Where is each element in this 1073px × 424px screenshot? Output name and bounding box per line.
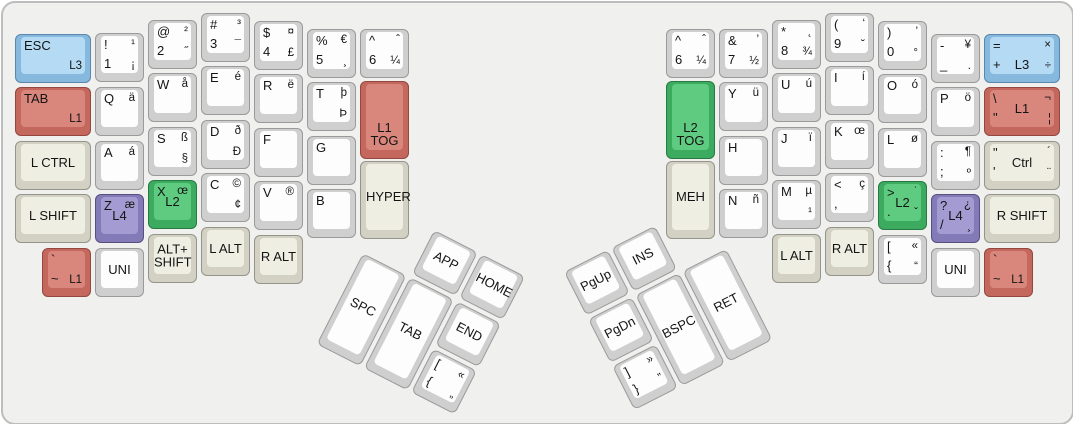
keycap-top: [«{“ <box>884 238 921 275</box>
key-label-bl: 6 <box>675 53 682 67</box>
key-label-tl: A <box>104 146 113 160</box>
keycap-top: L SHIFT <box>21 197 85 234</box>
key-label-tl: ( <box>834 18 838 32</box>
key-label-tl: ESC <box>24 39 51 53</box>
key-w[interactable]: Wå <box>148 73 197 122</box>
keycap-top: >˙.ˇL2 <box>884 184 921 221</box>
key-b[interactable]: B <box>307 189 356 238</box>
key-label-c: APP <box>427 246 466 275</box>
keycap-top: HYPER <box>366 164 403 230</box>
key-semicolon[interactable]: :¶;º <box>931 141 980 190</box>
key-label-c: L4 <box>937 209 974 223</box>
key-label-tr: ö <box>965 92 971 104</box>
keycap-top: Ií <box>831 69 868 106</box>
key-label-br: ° <box>913 47 918 59</box>
key-label-tl: T <box>316 87 324 101</box>
keycap-top: *˛8¾ <box>778 23 815 60</box>
key-label-br: L1 <box>1011 274 1024 286</box>
key-k[interactable]: Kœ <box>825 120 874 169</box>
key-label-tr: © <box>233 178 241 190</box>
key-label-c: R SHIFT <box>990 209 1054 223</box>
key-label-tr: þ <box>341 87 347 99</box>
keycap-top: %€5¸ <box>313 32 350 69</box>
keycap-top: Yü <box>725 85 762 122</box>
key-label-tl: # <box>210 18 217 32</box>
key-x-l2[interactable]: XœL2 <box>148 180 197 229</box>
key-lbracket-right[interactable]: [«{“ <box>878 235 927 284</box>
key-r[interactable]: Rë <box>254 74 303 123</box>
keycap-top: H <box>725 139 762 176</box>
key-f[interactable]: F <box>254 128 303 177</box>
key-label-br: L1 <box>69 274 82 286</box>
key-label-tl: D <box>210 125 219 139</box>
keycap-top: G <box>313 139 350 176</box>
key-lalt-left[interactable]: L ALT <box>201 227 250 276</box>
key-label-tr: ï <box>809 132 812 144</box>
keycap-top: <ç, <box>831 176 868 213</box>
keycap-top: Nñ <box>725 192 762 229</box>
key-4[interactable]: $¤4£ <box>254 21 303 70</box>
key-label-tl: ^ <box>369 34 375 48</box>
key-label-tr: × <box>1044 39 1051 51</box>
keycap-top: PgUp <box>571 255 621 305</box>
key-esc-l3[interactable]: ESCL3 <box>15 34 91 83</box>
key-label-tr: µ <box>805 185 812 197</box>
key-label-c: L2 TOG <box>672 121 709 148</box>
keycap-top: =×+÷L3 <box>990 37 1054 74</box>
keycap-top: ?¿/¸L4 <box>937 197 974 234</box>
key-label-tl: ) <box>887 26 891 40</box>
keycap-top: END <box>445 307 495 357</box>
key-label-tr: ß <box>181 132 188 144</box>
key-6-right[interactable]: ^ˆ6¼ <box>666 29 715 78</box>
keycap-top: DðÐ <box>207 123 244 160</box>
keycap-top: TþÞ <box>313 85 350 122</box>
key-label-bl: 3 <box>210 37 217 51</box>
key-label-c: L2 <box>154 195 191 209</box>
key-label-tl: Y <box>728 87 737 101</box>
key-label-tr: ˆ <box>702 34 706 46</box>
key-label-c: UNI <box>101 263 138 277</box>
key-label-tr: ³ <box>237 18 241 30</box>
keyboard-layout-canvas: ESCL3TABL1L CTRLL SHIFT`~L1!¹1¡QäAáZæL4U… <box>0 0 1073 424</box>
key-label-tr: ë <box>288 79 294 91</box>
key-label-tl: P <box>940 92 949 106</box>
key-label-tl: @ <box>157 25 170 39</box>
key-label-c: TAB <box>391 317 430 346</box>
key-o[interactable]: Oó <box>878 74 927 123</box>
key-label-c: MEH <box>672 190 709 204</box>
keycap-top: Rë <box>260 77 297 114</box>
keycap-top: R ALT <box>831 230 868 267</box>
key-label-br: ½ <box>749 55 759 67</box>
key-label-tr: é <box>235 71 241 83</box>
key-label-tl: U <box>781 78 790 92</box>
keycap-top: L ALT <box>207 230 244 267</box>
keycap-top: -¥_. <box>937 37 974 74</box>
key-p[interactable]: Pö <box>931 87 980 136</box>
key-label-tr: ¶ <box>965 146 971 158</box>
key-label-tl: TAB <box>24 92 48 106</box>
keycap-top: MEH <box>672 164 709 230</box>
key-label-tl: N <box>728 194 737 208</box>
key-label-br: ¹ <box>808 206 812 218</box>
key-label-tr: ˛ <box>808 25 812 37</box>
keycap-top: ZæL4 <box>101 197 138 234</box>
key-i[interactable]: Ií <box>825 66 874 115</box>
keycap-top: B <box>313 192 350 229</box>
keycap-top: ^ˆ6¼ <box>366 32 403 69</box>
key-label-c: L4 <box>101 209 138 223</box>
key-label-br: Þ <box>339 108 347 120</box>
key-label-c: L3 <box>990 58 1054 72</box>
keycap-top: ALT+ SHIFT <box>154 237 191 274</box>
key-label-bl: 7 <box>728 53 735 67</box>
key-label-c: L ALT <box>207 242 244 256</box>
key-tab-l1[interactable]: TABL1 <box>15 87 91 136</box>
key-label-bl: 8 <box>781 44 788 58</box>
key-m[interactable]: Mµ¹ <box>772 180 821 229</box>
keycap-top: [«{„ <box>421 354 471 404</box>
key-label-br: ¯ <box>235 39 241 51</box>
key-label-br: º <box>967 167 971 179</box>
keycap-top: $¤4£ <box>260 24 297 61</box>
key-t[interactable]: TþÞ <box>307 82 356 131</box>
key-label-c: L SHIFT <box>21 209 85 223</box>
key-label-tl: S <box>157 132 166 146</box>
keycap-top: L1 TOG <box>366 84 403 150</box>
key-label-tl: [ <box>887 240 891 254</box>
key-label-tr: å <box>182 78 188 90</box>
key-uni-left[interactable]: UNI <box>95 248 144 297</box>
keycap-top: L2 TOG <box>672 84 709 150</box>
key-label-tl: - <box>940 39 944 53</box>
keycap-top: Kœ <box>831 123 868 160</box>
key-d[interactable]: DðÐ <box>201 120 250 169</box>
keycap-top: Aá <box>101 144 138 181</box>
keycap-top: PgDn <box>595 302 645 352</box>
keycap-top: Wå <box>154 76 191 113</box>
keycap-top: &’7½ <box>725 32 762 69</box>
key-label-c: BSPC <box>659 312 698 341</box>
key-uni-right[interactable]: UNI <box>931 248 980 297</box>
key-v[interactable]: V® <box>254 181 303 230</box>
keycap-top: Oó <box>884 77 921 114</box>
key-label-tr: ø <box>911 133 918 145</box>
key-ralt-left[interactable]: R ALT <box>254 235 303 284</box>
key-minus[interactable]: -¥_. <box>931 34 980 83</box>
key-label-br: ” <box>656 371 665 383</box>
key-lctrl[interactable]: L CTRL <box>15 141 91 190</box>
key-a[interactable]: Aá <box>95 141 144 190</box>
keycap-top: Jï <box>778 130 815 167</box>
key-label-tl: = <box>993 39 1001 53</box>
key-label-tr: ’ <box>915 26 918 38</box>
key-label-tr: « <box>456 368 467 382</box>
key-5[interactable]: %€5¸ <box>307 29 356 78</box>
key-label-c: R ALT <box>260 250 297 264</box>
key-h[interactable]: H <box>719 136 768 185</box>
key-q[interactable]: Qä <box>95 87 144 136</box>
key-7[interactable]: &’7½ <box>719 29 768 78</box>
key-backslash-l1[interactable]: \¬"¦L1 <box>984 87 1060 136</box>
key-label-c: PgUp <box>576 266 615 295</box>
key-label-tl: L <box>887 133 894 147</box>
keycap-top: ]»}” <box>619 350 669 400</box>
key-label-tl: R <box>263 79 272 93</box>
key-label-br: L3 <box>69 60 82 72</box>
key-lalt-right[interactable]: L ALT <box>772 234 821 283</box>
key-label-c: INS <box>623 241 662 270</box>
keycap-top: !¹1¡ <box>101 36 138 73</box>
keycap-top: )’0° <box>884 24 921 61</box>
key-label-bl: } <box>631 382 641 396</box>
key-label-c: R ALT <box>831 242 868 256</box>
key-e[interactable]: Eé <box>201 66 250 115</box>
key-g[interactable]: G <box>307 136 356 185</box>
key-u[interactable]: Uú <box>772 73 821 122</box>
keycap-top: C©¢ <box>207 176 244 213</box>
key-s[interactable]: Sß§ <box>148 127 197 176</box>
key-label-tr: € <box>341 34 347 46</box>
key-label-tl: I <box>834 71 838 85</box>
key-label-tl: [ <box>433 357 442 371</box>
key-label-tr: á <box>129 146 135 158</box>
key-label-c: UNI <box>937 263 974 277</box>
keycap-top: "´'¨Ctrl <box>990 144 1054 181</box>
key-label-tl: & <box>728 34 737 48</box>
keycap-top: F <box>260 131 297 168</box>
key-9[interactable]: (‘9˘ <box>825 13 874 62</box>
key-meh[interactable]: MEH <box>666 161 715 239</box>
keycap-top: UNI <box>937 251 974 288</box>
key-label-tl: * <box>781 25 786 39</box>
keycap-top: `~L1 <box>48 251 85 288</box>
key-label-bl: _ <box>940 58 947 72</box>
key-label-c: L1 <box>990 102 1054 116</box>
key-label-br: „ <box>448 388 457 400</box>
key-label-c: ALT+ SHIFT <box>154 242 191 269</box>
keycap-top: Eé <box>207 69 244 106</box>
key-label-br: ¡ <box>131 59 135 71</box>
key-label-bl: 1 <box>104 57 111 71</box>
key-lshift[interactable]: L SHIFT <box>15 194 91 243</box>
key-label-c: Ctrl <box>990 156 1054 170</box>
keycap-top: Sß§ <box>154 130 191 167</box>
key-label-tl: < <box>834 178 842 192</box>
key-label-br: ¼ <box>696 55 706 67</box>
key-label-tr: ú <box>806 78 812 90</box>
key-label-tl: W <box>157 78 169 92</box>
key-label-tr: ñ <box>753 194 759 206</box>
key-0[interactable]: )’0° <box>878 21 927 70</box>
key-label-tl: : <box>940 146 944 160</box>
keycap-top: TABL1 <box>21 90 85 127</box>
keycap-top: ESCL3 <box>21 37 85 74</box>
key-label-tr: ® <box>286 186 294 198</box>
key-label-tl: O <box>887 79 897 93</box>
key-8[interactable]: *˛8¾ <box>772 20 821 69</box>
key-label-bl: ~ <box>51 272 59 286</box>
key-label-c: L2 <box>884 196 921 210</box>
key-label-br: § <box>182 153 188 165</box>
key-comma[interactable]: <ç, <box>825 173 874 222</box>
key-label-tr: ‘ <box>862 18 865 30</box>
key-z-l4[interactable]: ZæL4 <box>95 194 144 243</box>
keycap-top: APP <box>421 235 471 285</box>
key-label-tr: ˆ <box>396 34 400 46</box>
keycap-top: L ALT <box>778 237 815 274</box>
key-label-br: ¸ <box>343 55 347 67</box>
keycap-top: R SHIFT <box>990 197 1054 234</box>
key-label-tr: ä <box>129 92 135 104</box>
key-label-tl: ^ <box>675 34 681 48</box>
key-label-tr: ó <box>912 79 918 91</box>
key-label-br: Ð <box>233 146 241 158</box>
key-label-c: END <box>450 317 489 346</box>
key-label-tl: G <box>316 141 326 155</box>
key-label-tr: » <box>644 353 655 367</box>
key-label-c: RET <box>707 288 746 317</box>
keycap-top: Qä <box>101 90 138 127</box>
key-label-tr: í <box>862 71 865 83</box>
keycap-top: :¶;º <box>937 144 974 181</box>
key-label-tl: ] <box>622 365 631 379</box>
key-label-c: PgDn <box>600 313 639 342</box>
keycap-top: XœL2 <box>154 183 191 220</box>
key-label-tl: $ <box>263 26 270 40</box>
key-quote-ctrl[interactable]: "´'¨Ctrl <box>984 141 1060 190</box>
key-label-tl: J <box>781 132 788 146</box>
key-label-c: L ALT <box>778 249 815 263</box>
key-label-bl: ; <box>940 165 944 179</box>
key-label-tr: ’ <box>756 34 759 46</box>
keycap-top: UNI <box>101 251 138 288</box>
key-2[interactable]: @²2˝ <box>148 20 197 69</box>
key-label-c: L1 TOG <box>366 121 403 148</box>
keycap-top: (‘9˘ <box>831 16 868 53</box>
key-label-tr: ² <box>184 25 188 37</box>
key-label-bl: 9 <box>834 37 841 51</box>
key-c[interactable]: C©¢ <box>201 173 250 222</box>
key-label-br: ¾ <box>802 46 812 58</box>
key-j[interactable]: Jï <box>772 127 821 176</box>
key-l1-tog[interactable]: L1 TOG <box>360 81 409 159</box>
key-grave-l1-right[interactable]: `~L1 <box>984 248 1033 297</box>
key-label-br: ˘ <box>861 39 865 51</box>
key-label-c: L CTRL <box>21 156 85 170</box>
keycap-top: Lø <box>884 131 921 168</box>
key-1[interactable]: !¹1¡ <box>95 33 144 82</box>
keycap-top: Uú <box>778 76 815 113</box>
key-rshift[interactable]: R SHIFT <box>984 194 1060 243</box>
key-label-tr: ç <box>859 178 865 190</box>
key-label-bl: 0 <box>887 45 894 59</box>
key-label-tl: ` <box>993 253 997 267</box>
key-label-tr: « <box>912 240 918 252</box>
key-label-tl: F <box>263 133 271 147</box>
key-label-bl: 4 <box>263 45 270 59</box>
key-label-bl: 6 <box>369 53 376 67</box>
key-label-tl: E <box>210 71 219 85</box>
key-label-tl: % <box>316 34 328 48</box>
key-n[interactable]: Nñ <box>719 189 768 238</box>
keycap-top: R ALT <box>260 238 297 275</box>
key-label-bl: { <box>887 259 891 273</box>
key-label-tl: K <box>834 125 843 139</box>
key-3[interactable]: #³3¯ <box>201 13 250 62</box>
keycap-top: ^ˆ6¼ <box>672 32 709 69</box>
keycap-top: INS <box>618 231 668 281</box>
keycap-top: L CTRL <box>21 144 85 181</box>
key-label-tr: ð <box>235 125 241 137</box>
key-label-c: HYPER <box>366 190 403 204</box>
key-label-bl: ~ <box>993 272 1001 286</box>
keycap-top: Mµ¹ <box>778 183 815 220</box>
keycap-top: @²2˝ <box>154 23 191 60</box>
key-label-tr: ü <box>753 87 759 99</box>
key-hyper[interactable]: HYPER <box>360 161 409 239</box>
key-label-br: L1 <box>69 113 82 125</box>
key-label-tl: H <box>728 141 737 155</box>
key-ralt-right[interactable]: R ALT <box>825 227 874 276</box>
keycap-top: `~L1 <box>990 251 1027 288</box>
key-label-tl: Q <box>104 92 114 106</box>
key-label-tr: ¤ <box>288 26 294 38</box>
key-label-tr: œ <box>854 125 865 137</box>
keyboard-plate: ESCL3TABL1L CTRLL SHIFT`~L1!¹1¡QäAáZæL4U… <box>1 1 1073 424</box>
key-6-left[interactable]: ^ˆ6¼ <box>360 29 409 78</box>
key-label-tl: C <box>210 178 219 192</box>
key-label-tl: V <box>263 186 272 200</box>
key-equals-l3[interactable]: =×+÷L3 <box>984 34 1060 83</box>
keycap-top: Pö <box>937 90 974 127</box>
keycap-top: HOME <box>469 260 519 310</box>
keycap-top: #³3¯ <box>207 16 244 53</box>
key-label-tl: M <box>781 185 792 199</box>
key-label-br: ¢ <box>235 199 241 211</box>
key-label-tl: ` <box>51 253 55 267</box>
key-label-bl: { <box>424 374 434 388</box>
key-y[interactable]: Yü <box>719 82 768 131</box>
key-period-l2[interactable]: >˙.ˇL2 <box>878 181 927 230</box>
key-label-tl: B <box>316 194 325 208</box>
key-label-c: SPC <box>343 293 382 322</box>
key-label-bl: 5 <box>316 53 323 67</box>
key-grave-l1-left[interactable]: `~L1 <box>42 248 91 297</box>
key-label-tr: ¥ <box>965 39 971 51</box>
key-slash-l4[interactable]: ?¿/¸L4 <box>931 194 980 243</box>
key-label-br: “ <box>914 261 918 273</box>
keycap-top: \¬"¦L1 <box>990 90 1054 127</box>
key-label-br: ¼ <box>390 55 400 67</box>
key-label-br: ˝ <box>184 46 188 58</box>
key-l[interactable]: Lø <box>878 128 927 177</box>
key-label-c: HOME <box>474 270 513 299</box>
key-label-br: . <box>968 60 971 72</box>
key-label-bl: 2 <box>157 44 164 58</box>
key-label-tr: ¹ <box>131 38 135 50</box>
key-label-br: £ <box>288 47 294 59</box>
key-l2-tog[interactable]: L2 TOG <box>666 81 715 159</box>
key-label-bl: , <box>834 197 838 211</box>
keycap-top: V® <box>260 184 297 221</box>
key-label-tl: ! <box>104 38 108 52</box>
key-alt-shift[interactable]: ALT+ SHIFT <box>148 234 197 283</box>
